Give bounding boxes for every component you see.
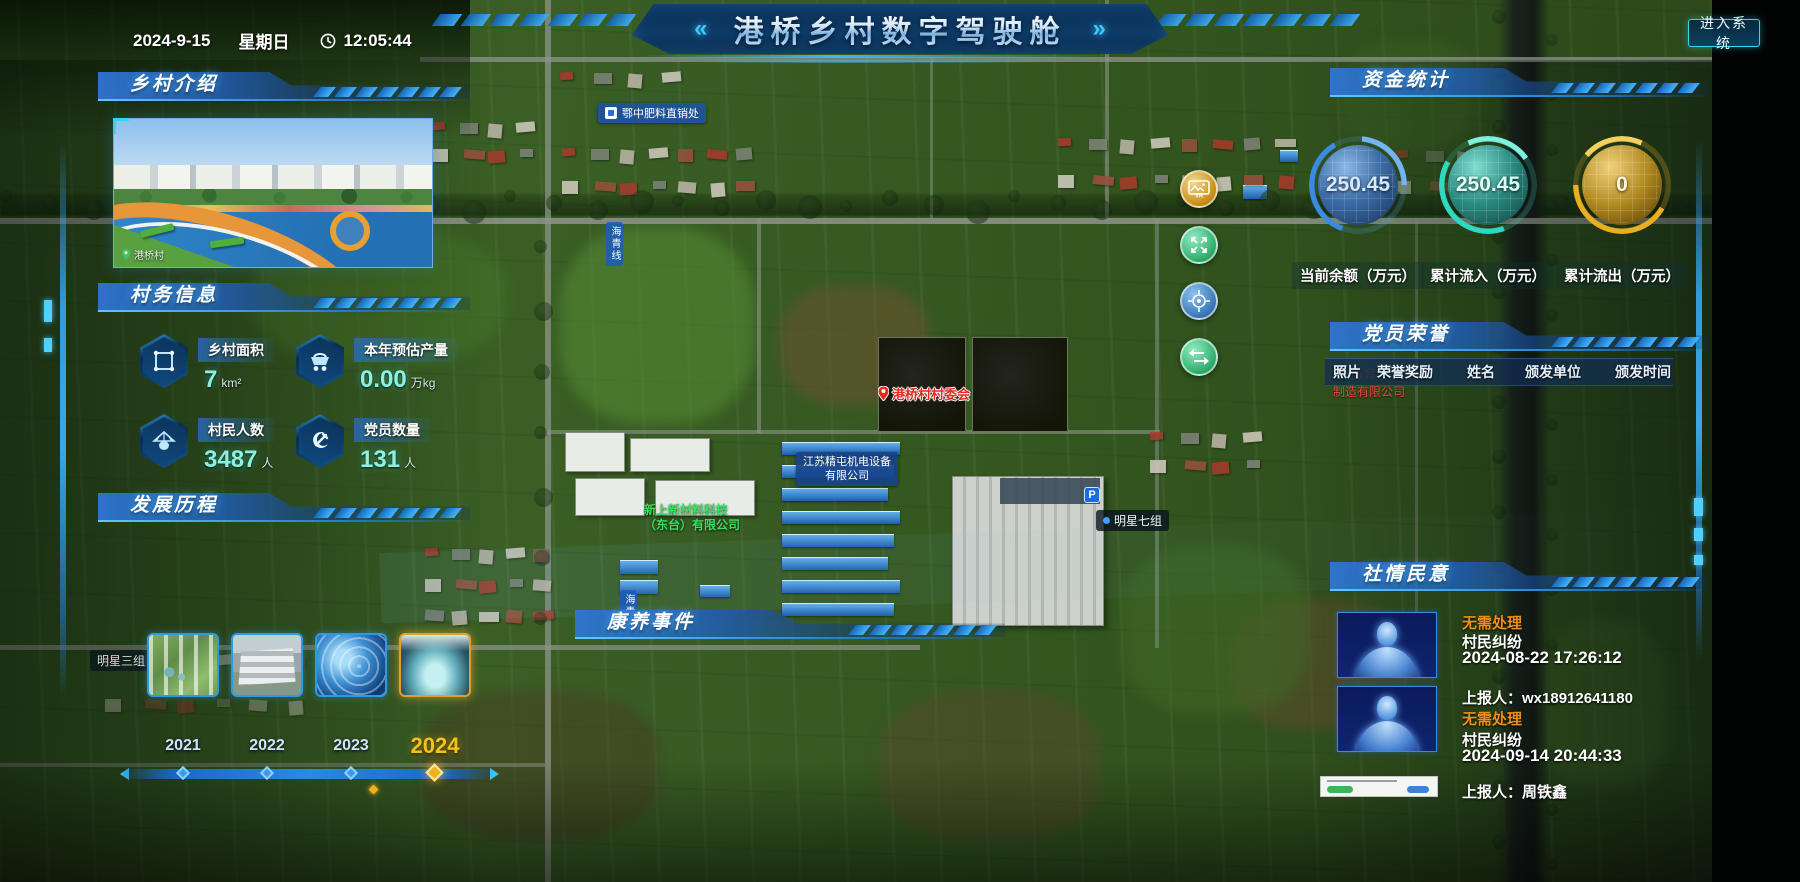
parking-icon: P bbox=[1084, 487, 1100, 503]
vr-panorama-button[interactable]: VR bbox=[1180, 170, 1218, 208]
tree bbox=[534, 364, 550, 380]
tree bbox=[1546, 474, 1558, 486]
field-patch bbox=[1120, 545, 1310, 715]
house bbox=[1151, 137, 1171, 149]
frame-accent bbox=[44, 338, 52, 352]
house bbox=[487, 123, 502, 138]
house bbox=[649, 147, 669, 159]
stat-value: 131 bbox=[360, 446, 400, 473]
sentiment-status: 无需处理 bbox=[1462, 708, 1522, 729]
tree bbox=[1492, 395, 1506, 409]
greenhouse-strip bbox=[782, 534, 894, 547]
tree bbox=[1492, 10, 1506, 24]
house bbox=[505, 609, 522, 623]
panel-header-development: 发展历程 bbox=[98, 493, 470, 520]
cart-icon bbox=[296, 334, 344, 388]
house bbox=[1155, 175, 1168, 183]
year-label-2021[interactable]: 2021 bbox=[147, 737, 219, 755]
tree bbox=[1008, 190, 1020, 202]
blue-roof bbox=[1280, 150, 1298, 162]
stat-label: 村民人数 bbox=[198, 418, 274, 442]
column-header-name: 姓名 bbox=[1459, 362, 1517, 382]
header-hatch-decoration bbox=[317, 298, 458, 308]
road bbox=[545, 0, 551, 882]
tree bbox=[534, 426, 547, 439]
building bbox=[565, 432, 625, 472]
house bbox=[662, 71, 682, 83]
title-left-chevron-icon: « bbox=[694, 15, 707, 43]
locate-button[interactable] bbox=[1180, 282, 1218, 320]
frame-accent bbox=[1694, 498, 1703, 516]
left-frame-decoration bbox=[60, 140, 66, 700]
year-label-2022[interactable]: 2022 bbox=[231, 737, 303, 755]
panel-header-party-honor: 党员荣誉 bbox=[1330, 322, 1708, 349]
column-header-issuer: 颁发单位 bbox=[1517, 362, 1607, 382]
house bbox=[464, 149, 486, 160]
stat-party-member-count: 党员数量 131人 bbox=[296, 414, 446, 486]
gauge-current-balance: 250.45 bbox=[1314, 141, 1402, 229]
house bbox=[432, 149, 448, 162]
header-hatch-decoration bbox=[317, 508, 458, 518]
house bbox=[145, 699, 167, 710]
gauge-total-outflow: 0 bbox=[1578, 141, 1666, 229]
road bbox=[0, 763, 545, 767]
fullscreen-button[interactable] bbox=[1180, 226, 1218, 264]
vr-image-icon: VR bbox=[1188, 180, 1210, 198]
tree bbox=[840, 200, 852, 212]
stat-unit: 人 bbox=[261, 456, 273, 470]
house bbox=[1278, 175, 1294, 189]
datetime: 2024-9-15 星期日 12:05:44 bbox=[133, 28, 412, 53]
stat-label: 党员数量 bbox=[354, 418, 430, 442]
header-hatch-decoration bbox=[1555, 83, 1696, 93]
sentiment-item-avatar[interactable] bbox=[1337, 686, 1437, 752]
blue-roof bbox=[620, 560, 658, 574]
house bbox=[678, 181, 697, 194]
house bbox=[1120, 176, 1138, 189]
house bbox=[736, 181, 755, 191]
tree bbox=[798, 195, 822, 219]
house bbox=[1244, 137, 1261, 150]
house bbox=[1119, 139, 1134, 154]
map-label-road: 海青线 bbox=[606, 222, 623, 266]
house bbox=[520, 149, 533, 157]
clock-icon bbox=[320, 33, 336, 49]
tree bbox=[1546, 309, 1558, 321]
development-thumb-2022[interactable] bbox=[231, 633, 303, 697]
stat-village-area: 乡村面积 7km² bbox=[140, 334, 290, 406]
gauge-value: 250.45 bbox=[1314, 141, 1402, 229]
frame-accent bbox=[44, 300, 52, 322]
house bbox=[288, 700, 303, 715]
panel-title: 村务信息 bbox=[98, 283, 218, 309]
house bbox=[425, 579, 441, 592]
house bbox=[1182, 139, 1197, 152]
map-label-village-committee: 港桥村村委会 bbox=[878, 384, 970, 403]
house bbox=[627, 73, 642, 88]
gauge-total-inflow: 250.45 bbox=[1444, 141, 1532, 229]
house bbox=[451, 610, 467, 625]
sentiment-time: 2024-09-14 20:44:33 bbox=[1462, 746, 1622, 766]
tree bbox=[588, 200, 608, 220]
map-label-company-xinshang: 新上新材料科技 （东台）有限公司 bbox=[644, 503, 740, 533]
house bbox=[425, 609, 445, 622]
gauge-label-total-inflow: 累计流入（万元） bbox=[1422, 262, 1554, 289]
house bbox=[425, 547, 439, 556]
shop-icon bbox=[605, 107, 617, 119]
header-decoration-right bbox=[1160, 14, 1356, 26]
title-swoosh bbox=[699, 60, 1061, 63]
house bbox=[594, 73, 612, 84]
tree bbox=[42, 195, 58, 211]
sentiment-reporter: 上报人：周铁鑫 bbox=[1462, 781, 1567, 802]
tree bbox=[1492, 120, 1506, 134]
blue-roof bbox=[700, 585, 730, 597]
crosshair-icon bbox=[1188, 290, 1210, 312]
field-patch bbox=[880, 690, 1100, 840]
tree bbox=[1546, 529, 1558, 541]
area-icon bbox=[140, 334, 188, 388]
tree bbox=[1134, 190, 1158, 214]
house bbox=[432, 121, 446, 130]
year-label-2024[interactable]: 2024 bbox=[399, 733, 471, 759]
tree bbox=[882, 190, 898, 206]
house bbox=[516, 121, 536, 133]
house bbox=[1089, 139, 1107, 150]
map-label-mingxing7: 明星七组 bbox=[1096, 510, 1169, 531]
stat-unit: km² bbox=[221, 376, 241, 390]
stat-unit: 万kg bbox=[411, 376, 436, 390]
title-right-chevron-icon: » bbox=[1093, 15, 1106, 43]
svg-text:VR: VR bbox=[1195, 194, 1204, 199]
panel-title: 社情民意 bbox=[1330, 562, 1450, 588]
panel-header-village-info: 村务信息 bbox=[98, 283, 470, 310]
house bbox=[591, 149, 609, 160]
tree bbox=[534, 302, 553, 321]
map-label-mingxing3: 明星三组 bbox=[90, 650, 152, 671]
pond bbox=[972, 337, 1068, 432]
greenhouse-strip bbox=[782, 580, 900, 593]
house bbox=[506, 547, 526, 559]
house bbox=[1244, 175, 1263, 185]
tree bbox=[1546, 859, 1558, 871]
column-header-award: 荣誉奖励 bbox=[1369, 362, 1459, 382]
stat-value: 0.00 bbox=[360, 366, 407, 393]
frame-accent bbox=[1694, 528, 1703, 541]
tree bbox=[1092, 200, 1112, 220]
photo-corner-accent bbox=[113, 118, 129, 134]
house bbox=[560, 71, 574, 80]
house bbox=[1181, 433, 1199, 444]
development-thumb-2024[interactable] bbox=[399, 633, 471, 697]
timeline-next-arrow[interactable] bbox=[490, 768, 499, 780]
tree bbox=[1492, 450, 1506, 464]
sentiment-status: 无需处理 bbox=[1462, 612, 1522, 633]
header-hatch-decoration bbox=[1555, 577, 1696, 587]
road bbox=[930, 57, 933, 218]
panel-header-village-intro: 乡村介绍 bbox=[98, 72, 470, 99]
house bbox=[533, 579, 552, 592]
dashboard-root: 鄂中肥料直销处 港桥村村委会 江苏精屯机电设备 有限公司 新上新材料科技 （东台… bbox=[0, 0, 1800, 882]
gauge-value: 0 bbox=[1578, 141, 1666, 229]
photo-location-caption: 港桥村 bbox=[122, 247, 164, 262]
road bbox=[757, 218, 761, 433]
house bbox=[562, 181, 578, 194]
tree bbox=[1546, 34, 1558, 46]
date-label: 2024-9-15 bbox=[133, 31, 211, 51]
tree bbox=[534, 488, 553, 507]
development-thumb-2023[interactable] bbox=[315, 633, 387, 697]
tree bbox=[1546, 199, 1558, 211]
field-patch bbox=[560, 228, 755, 423]
villager-icon bbox=[140, 414, 188, 468]
house bbox=[1212, 461, 1230, 474]
enter-system-button[interactable]: 进入系统 bbox=[1688, 19, 1760, 47]
house bbox=[653, 181, 666, 189]
house bbox=[1213, 139, 1234, 150]
house bbox=[595, 181, 617, 192]
column-header-issue-date: 颁发时间 bbox=[1607, 362, 1673, 382]
house bbox=[478, 549, 493, 564]
house bbox=[710, 182, 725, 197]
map-label-company-jingtun: 江苏精屯机电设备 有限公司 bbox=[796, 452, 898, 486]
gauge-label-current-balance: 当前余额（万元） bbox=[1292, 262, 1424, 289]
house bbox=[1150, 431, 1164, 440]
house bbox=[177, 700, 195, 713]
house bbox=[1275, 139, 1296, 147]
house bbox=[707, 149, 728, 160]
tree bbox=[672, 195, 684, 207]
house bbox=[1216, 176, 1231, 191]
sentiment-reporter: 上报人：wx18912641180 bbox=[1462, 687, 1633, 708]
map-label-fertilizer-store: 鄂中肥料直销处 bbox=[598, 103, 706, 123]
tree bbox=[534, 240, 547, 253]
panel-header-health-events: 康养事件 bbox=[575, 610, 1005, 637]
tree bbox=[756, 190, 776, 210]
house bbox=[452, 549, 470, 560]
house bbox=[479, 612, 499, 622]
stat-label: 本年预估产量 bbox=[354, 338, 458, 362]
stat-estimated-output: 本年预估产量 0.00万kg bbox=[296, 334, 446, 406]
tree bbox=[462, 200, 486, 224]
house bbox=[1058, 137, 1072, 146]
page-title: 港桥乡村数字驾驶舱 bbox=[734, 7, 1067, 51]
column-header-photo: 照片 bbox=[1325, 362, 1369, 382]
tree bbox=[84, 200, 104, 220]
title-banner: « 港桥乡村数字驾驶舱 » bbox=[632, 4, 1168, 54]
house bbox=[510, 579, 523, 587]
panel-title: 资金统计 bbox=[1330, 68, 1450, 94]
tree bbox=[1050, 195, 1066, 211]
house bbox=[479, 580, 497, 593]
panel-title: 党员荣誉 bbox=[1330, 322, 1450, 348]
stat-villager-count: 村民人数 3487人 bbox=[140, 414, 290, 486]
house bbox=[736, 147, 753, 160]
village-photo: 港桥村 bbox=[113, 118, 433, 268]
stat-value: 3487 bbox=[204, 446, 257, 473]
house bbox=[1150, 460, 1166, 473]
house bbox=[619, 149, 634, 164]
sentiment-item-avatar[interactable] bbox=[1337, 612, 1437, 678]
tree bbox=[1680, 195, 1692, 207]
tree bbox=[1492, 835, 1506, 849]
house bbox=[1058, 175, 1074, 188]
house bbox=[678, 149, 693, 162]
gauge-value: 250.45 bbox=[1444, 141, 1532, 229]
party-emblem-icon bbox=[296, 414, 344, 468]
tree bbox=[1546, 804, 1558, 816]
development-thumb-2021[interactable] bbox=[147, 633, 219, 697]
house bbox=[1426, 151, 1444, 162]
tree bbox=[546, 195, 562, 211]
panel-title: 发展历程 bbox=[98, 493, 218, 519]
tree bbox=[1492, 670, 1506, 684]
stat-value: 7 bbox=[204, 366, 217, 393]
house bbox=[1185, 460, 1207, 471]
tree bbox=[924, 195, 944, 215]
title-swoosh bbox=[639, 55, 1121, 58]
tree bbox=[0, 190, 12, 202]
house bbox=[217, 699, 230, 707]
gauge-label-total-outflow: 累计流出（万元） bbox=[1556, 262, 1688, 289]
house bbox=[1093, 175, 1115, 186]
house bbox=[1243, 431, 1263, 443]
tree bbox=[534, 612, 547, 625]
building bbox=[575, 478, 645, 516]
tree bbox=[966, 200, 990, 224]
tree bbox=[1492, 505, 1506, 519]
time-label: 12:05:44 bbox=[344, 31, 412, 51]
tree bbox=[1260, 190, 1280, 210]
house bbox=[249, 699, 268, 712]
sentiment-webpage-thumbnail[interactable] bbox=[1320, 776, 1438, 797]
stat-unit: 人 bbox=[404, 456, 416, 470]
tree bbox=[534, 550, 550, 566]
panel-title: 康养事件 bbox=[575, 610, 695, 636]
switch-layer-button[interactable] bbox=[1180, 338, 1218, 376]
tree bbox=[630, 190, 654, 214]
house bbox=[562, 147, 576, 156]
poi-dot-icon bbox=[1103, 517, 1110, 524]
tree bbox=[1546, 419, 1558, 431]
year-label-2023[interactable]: 2023 bbox=[315, 737, 387, 755]
tree bbox=[714, 200, 730, 216]
stat-label: 乡村面积 bbox=[198, 338, 274, 362]
header-hatch-decoration bbox=[317, 87, 458, 97]
building bbox=[630, 438, 710, 472]
map-pin-icon bbox=[878, 386, 889, 401]
panel-header-sentiment: 社情民意 bbox=[1330, 562, 1708, 589]
greenhouse-strip bbox=[782, 511, 900, 524]
header-hatch-decoration bbox=[1555, 337, 1696, 347]
header-decoration-left bbox=[436, 14, 632, 26]
house bbox=[460, 123, 478, 134]
expand-icon bbox=[1189, 235, 1209, 255]
house bbox=[1247, 460, 1260, 468]
tree bbox=[504, 190, 516, 202]
location-pin-icon bbox=[122, 249, 130, 260]
panel-title: 乡村介绍 bbox=[98, 72, 218, 98]
house bbox=[105, 699, 121, 712]
house bbox=[1211, 433, 1226, 448]
greenhouse-strip bbox=[782, 557, 888, 570]
house bbox=[456, 579, 478, 590]
sentiment-time: 2024-08-22 17:26:12 bbox=[1462, 648, 1622, 668]
header-hatch-decoration bbox=[852, 625, 993, 635]
swap-arrows-icon bbox=[1188, 347, 1210, 367]
party-honor-table-header: 照片 荣誉奖励 姓名 颁发单位 颁发时间 bbox=[1325, 358, 1673, 386]
greenhouse-strip bbox=[782, 488, 888, 501]
weekday-label: 星期日 bbox=[239, 28, 290, 53]
tree bbox=[1218, 200, 1234, 216]
panel-header-funds: 资金统计 bbox=[1330, 68, 1708, 95]
house bbox=[488, 150, 506, 163]
screen-bezel bbox=[1712, 0, 1800, 882]
tree bbox=[1546, 144, 1558, 156]
